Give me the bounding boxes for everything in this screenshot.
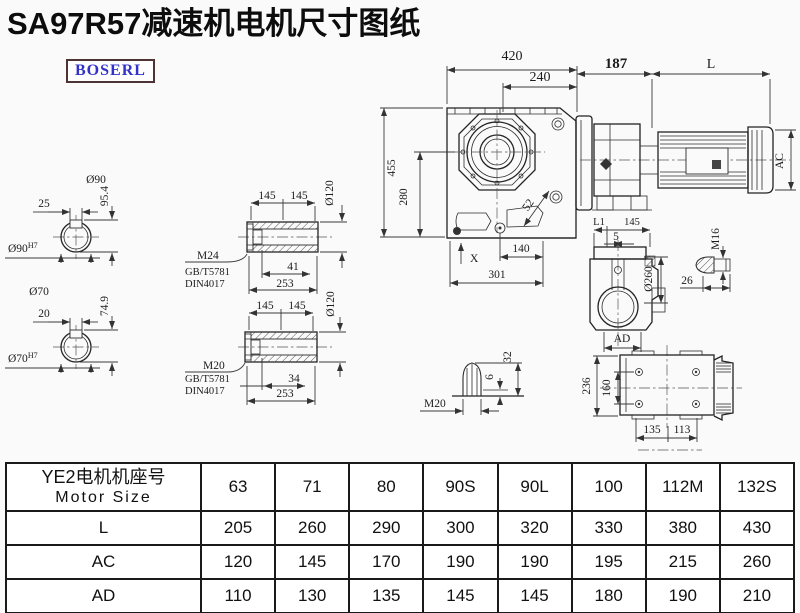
dia120-top-label: Ø120 (324, 180, 336, 206)
cell: 330 (572, 511, 646, 545)
h749-label: 74.9 (99, 296, 111, 316)
cell: 205 (201, 511, 275, 545)
m20-label: M20 (203, 360, 225, 372)
std2-bot-label: DIN4017 (185, 386, 225, 397)
std1-bot-label: GB/T5781 (185, 374, 230, 385)
motor-side-view: 187 L AC (577, 56, 796, 210)
drawing-page: SA97R57减速机电机尺寸图纸 BOSERL Ø90 25 95.4 (0, 0, 800, 613)
cell: 190 (423, 545, 497, 579)
dim-240-label: 240 (530, 70, 551, 85)
cell: 215 (646, 545, 720, 579)
h145b-label: 145 (290, 190, 308, 202)
dim-236-label: 236 (581, 377, 593, 395)
row-label: AC (6, 545, 201, 579)
motor-size-header-cn: YE2电机机座号 (7, 466, 200, 488)
row-label: L (6, 511, 201, 545)
gearbox-front-view: 420 240 455 280 52 X 140 301 (380, 49, 592, 287)
dim-6-label: 6 (484, 374, 496, 380)
dim-5-label: 5 (613, 231, 619, 243)
d41-label: 41 (287, 261, 299, 273)
col-header: 100 (572, 463, 646, 511)
cell: 190 (646, 579, 720, 613)
bore90-label: Ø90H7 (8, 241, 38, 255)
table-row-AD: AD 110 130 135 145 145 180 190 210 (6, 579, 794, 613)
cell: 130 (275, 579, 349, 613)
table-row-AC: AC 120 145 170 190 190 195 215 260 (6, 545, 794, 579)
h145d-label: 145 (288, 300, 306, 312)
std2-top-label: DIN4017 (185, 279, 225, 290)
x-mark-label: X (470, 253, 479, 265)
dim-260-label: Ø260 (643, 266, 655, 292)
dim-L1-label: L1 (593, 217, 605, 228)
d253-bot-label: 253 (276, 388, 294, 400)
std1-top-label: GB/T5781 (185, 267, 230, 278)
bore70-label: Ø70H7 (8, 351, 38, 365)
dim-280-label: 280 (398, 188, 410, 206)
cell: 110 (201, 579, 275, 613)
col-header: 90L (498, 463, 572, 511)
dim-32-label: 32 (502, 351, 514, 363)
cell: 135 (349, 579, 423, 613)
cell: 195 (572, 545, 646, 579)
cell: 260 (720, 545, 794, 579)
m20-bolt-detail: M20 6 32 (420, 351, 524, 415)
dim-26-label: 26 (681, 275, 693, 287)
dim-455-label: 455 (386, 159, 398, 177)
cell: 145 (423, 579, 497, 613)
row-label: AD (6, 579, 201, 613)
h145a-label: 145 (258, 190, 276, 202)
motor-size-header-cell: YE2电机机座号 Motor Size (6, 463, 201, 511)
col-header: 80 (349, 463, 423, 511)
cell: 430 (720, 511, 794, 545)
col-header: 71 (275, 463, 349, 511)
dim-187-label: 187 (605, 56, 628, 72)
hollow-shaft-m24-view: 145 145 Ø120 M24 GB/T5781 DIN4017 41 253 (185, 180, 347, 294)
key20-label: 20 (38, 308, 50, 320)
dim-160-label: 160 (601, 379, 613, 397)
shaft-section-70-view: Ø70 20 74.9 Ø70H7 (5, 286, 118, 376)
cell: 260 (275, 511, 349, 545)
dim-AC-label: AC (774, 153, 786, 169)
col-header: 63 (201, 463, 275, 511)
hollow-shaft-m20-view: 145 145 Ø120 M20 GB/T5781 DIN4017 34 253 (185, 291, 346, 405)
cell: 145 (275, 545, 349, 579)
cell: 120 (201, 545, 275, 579)
dim-420-label: 420 (502, 49, 523, 64)
key25-label: 25 (38, 198, 50, 210)
gearbox-top-view: 236 160 135 113 (581, 345, 742, 450)
dim-AD-label: AD (614, 333, 631, 345)
h954-label: 95.4 (99, 186, 111, 206)
dim-135-label: 135 (643, 424, 661, 436)
dim-113-label: 113 (674, 424, 691, 436)
cell: 180 (572, 579, 646, 613)
dia120-bot-label: Ø120 (325, 291, 337, 317)
d253-top-label: 253 (276, 278, 294, 290)
dim-145s-label: 145 (624, 217, 640, 228)
motor-size-table: YE2电机机座号 Motor Size 63 71 80 90S 90L 100… (5, 462, 795, 613)
cell: 170 (349, 545, 423, 579)
col-header: 132S (720, 463, 794, 511)
col-header: 90S (423, 463, 497, 511)
dia90-label: Ø90 (86, 174, 106, 186)
cell: 320 (498, 511, 572, 545)
dim-140-label: 140 (512, 243, 530, 255)
gearbox-output-side-view: L1 145 5 Ø260 AD (590, 217, 668, 352)
dim-L-label: L (707, 57, 716, 72)
dim-301-label: 301 (488, 269, 506, 281)
cell: 300 (423, 511, 497, 545)
m16-label: M16 (710, 228, 722, 250)
shaft-section-90-view: Ø90 25 95.4 Ø90H7 (5, 174, 118, 266)
table-header-row: YE2电机机座号 Motor Size 63 71 80 90S 90L 100… (6, 463, 794, 511)
table-row-L: L 205 260 290 300 320 330 380 430 (6, 511, 794, 545)
dia70-label: Ø70 (29, 286, 49, 298)
col-header: 112M (646, 463, 720, 511)
m24-label: M24 (197, 250, 219, 262)
cell: 145 (498, 579, 572, 613)
m16-bolt-detail: M16 26 (680, 228, 730, 292)
m20-bolt-label: M20 (424, 398, 446, 410)
d34-label: 34 (288, 373, 300, 385)
cell: 380 (646, 511, 720, 545)
h145c-label: 145 (256, 300, 274, 312)
motor-size-header-en: Motor Size (7, 488, 200, 508)
cell: 290 (349, 511, 423, 545)
cell: 190 (498, 545, 572, 579)
cell: 210 (720, 579, 794, 613)
